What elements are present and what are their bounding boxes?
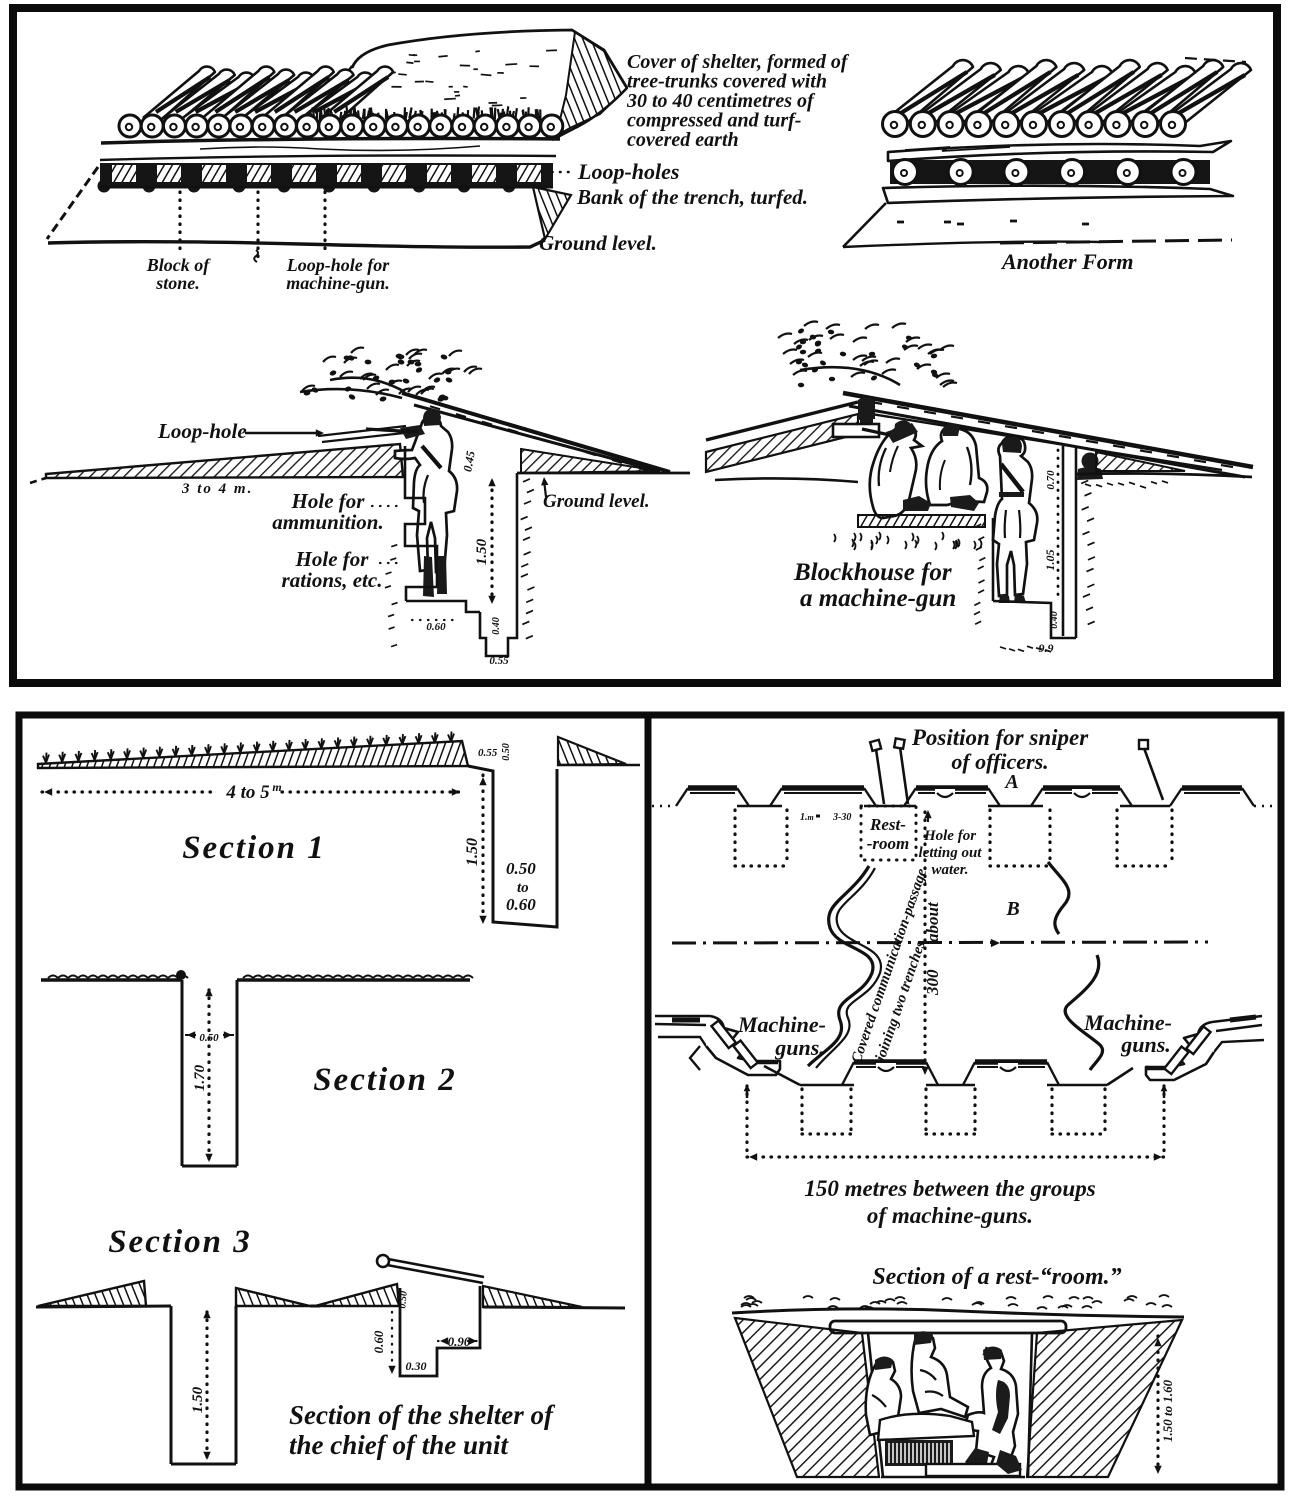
svg-text:0.60: 0.60	[506, 895, 536, 914]
svg-text:rations, etc.: rations, etc.	[282, 568, 383, 592]
svg-text:Section 2: Section 2	[313, 1062, 457, 1098]
svg-text:the chief of the unit: the chief of the unit	[289, 1430, 510, 1460]
svg-text:3 to 4 m.: 3 to 4 m.	[181, 481, 253, 497]
svg-text:covered earth: covered earth	[627, 129, 739, 151]
svg-text:0.30: 0.30	[406, 1359, 427, 1373]
svg-text:Another Form: Another Form	[1000, 249, 1133, 274]
svg-text:letting out: letting out	[919, 845, 983, 861]
svg-text:Section of the shelter of: Section of the shelter of	[289, 1400, 556, 1430]
svg-text:guns.: guns.	[774, 1035, 825, 1060]
svg-text:0.40: 0.40	[491, 617, 502, 635]
svg-text:4 to 5: 4 to 5	[225, 782, 270, 803]
svg-text:Loop-hole: Loop-hole	[157, 419, 247, 443]
svg-text:1.m: 1.m	[800, 812, 814, 823]
svg-text:Hole for: Hole for	[923, 828, 976, 844]
svg-text:0.50: 0.50	[199, 1032, 219, 1044]
svg-text:Loop-holes: Loop-holes	[577, 159, 679, 184]
svg-text:Blockhouse for: Blockhouse for	[793, 559, 952, 586]
svg-text:1.50 to 1.60: 1.50 to 1.60	[1160, 1379, 1175, 1442]
svg-text:of officers.: of officers.	[951, 749, 1048, 774]
svg-text:A: A	[1003, 771, 1018, 793]
svg-text:0.70: 0.70	[1045, 470, 1057, 490]
svg-text:300: 300	[923, 969, 942, 996]
svg-text:Section of a rest-“room.”: Section of a rest-“room.”	[872, 1264, 1121, 1290]
svg-text:0.55: 0.55	[489, 655, 509, 667]
svg-text:0.55: 0.55	[478, 747, 498, 759]
svg-text:0.60: 0.60	[371, 1330, 386, 1353]
svg-text:Bank of the trench, turfed.: Bank of the trench, turfed.	[576, 185, 808, 209]
svg-text:150 metres between the groups: 150 metres between the groups	[804, 1176, 1095, 1201]
svg-text:0.50: 0.50	[506, 859, 536, 878]
svg-text:Ground level.: Ground level.	[539, 231, 657, 255]
svg-text:m: m	[272, 780, 281, 794]
svg-text:0.40: 0.40	[1049, 611, 1060, 629]
svg-text:of machine-guns.: of machine-guns.	[867, 1203, 1033, 1228]
svg-text:1.05: 1.05	[1043, 550, 1057, 571]
svg-text:Block of: Block of	[146, 255, 211, 275]
svg-text:Rest-: Rest-	[869, 815, 906, 834]
svg-text:1.50: 1.50	[190, 1386, 206, 1413]
svg-text:0.60: 0.60	[426, 621, 446, 633]
svg-text:0.50: 0.50	[501, 743, 512, 761]
svg-text:stone.: stone.	[155, 273, 200, 293]
svg-text:to: to	[517, 880, 529, 896]
svg-text:Position for sniper: Position for sniper	[911, 725, 1089, 750]
svg-text:ammunition.: ammunition.	[272, 510, 383, 534]
svg-text:0.45: 0.45	[460, 450, 477, 473]
svg-text:3-30: 3-30	[832, 812, 851, 823]
svg-text:guns.: guns.	[1120, 1032, 1171, 1057]
svg-text:Ground level.: Ground level.	[543, 491, 650, 512]
svg-text:machine-gun.: machine-gun.	[286, 273, 390, 293]
svg-text:1.50: 1.50	[474, 538, 490, 565]
svg-text:Section 3: Section 3	[108, 1224, 252, 1260]
svg-text:Loop-hole for: Loop-hole for	[286, 255, 390, 275]
svg-text:9.9: 9.9	[1039, 641, 1054, 655]
svg-text:water.: water.	[931, 862, 968, 878]
svg-text:0.90: 0.90	[448, 1334, 471, 1349]
svg-text:Section 1: Section 1	[182, 830, 326, 866]
svg-text:about: about	[923, 901, 942, 942]
svg-text:Machine-: Machine-	[737, 1012, 826, 1037]
svg-text:-room: -room	[867, 834, 910, 853]
svg-text:B: B	[1005, 898, 1019, 920]
svg-text:a machine-gun: a machine-gun	[800, 585, 956, 612]
svg-text:1.70: 1.70	[192, 1064, 208, 1091]
svg-text:1.50: 1.50	[464, 838, 481, 866]
